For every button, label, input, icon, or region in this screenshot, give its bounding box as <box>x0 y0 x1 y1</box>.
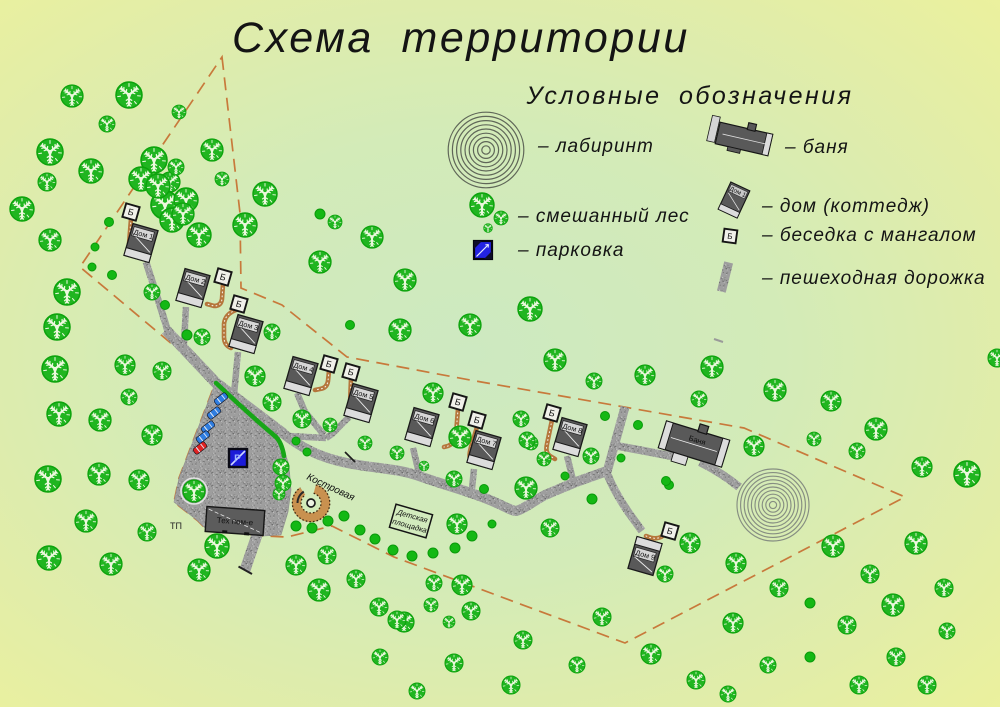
svg-text:– смешанный лес: – смешанный лес <box>517 206 690 227</box>
svg-text:Схема территории: Схема территории <box>232 14 690 62</box>
svg-text:ТП: ТП <box>170 521 182 531</box>
svg-text:– парковка: – парковка <box>517 240 624 261</box>
svg-text:– беседка с мангалом: – беседка с мангалом <box>761 225 977 246</box>
svg-text:– лабиринт: – лабиринт <box>537 136 654 157</box>
svg-text:P: P <box>234 454 241 465</box>
svg-text:Условные обозначения: Условные обозначения <box>525 82 853 110</box>
svg-text:– дом (коттедж): – дом (коттедж) <box>761 196 930 217</box>
svg-text:– баня: – баня <box>784 137 849 158</box>
svg-text:– пешеходная дорожка: – пешеходная дорожка <box>761 268 986 289</box>
